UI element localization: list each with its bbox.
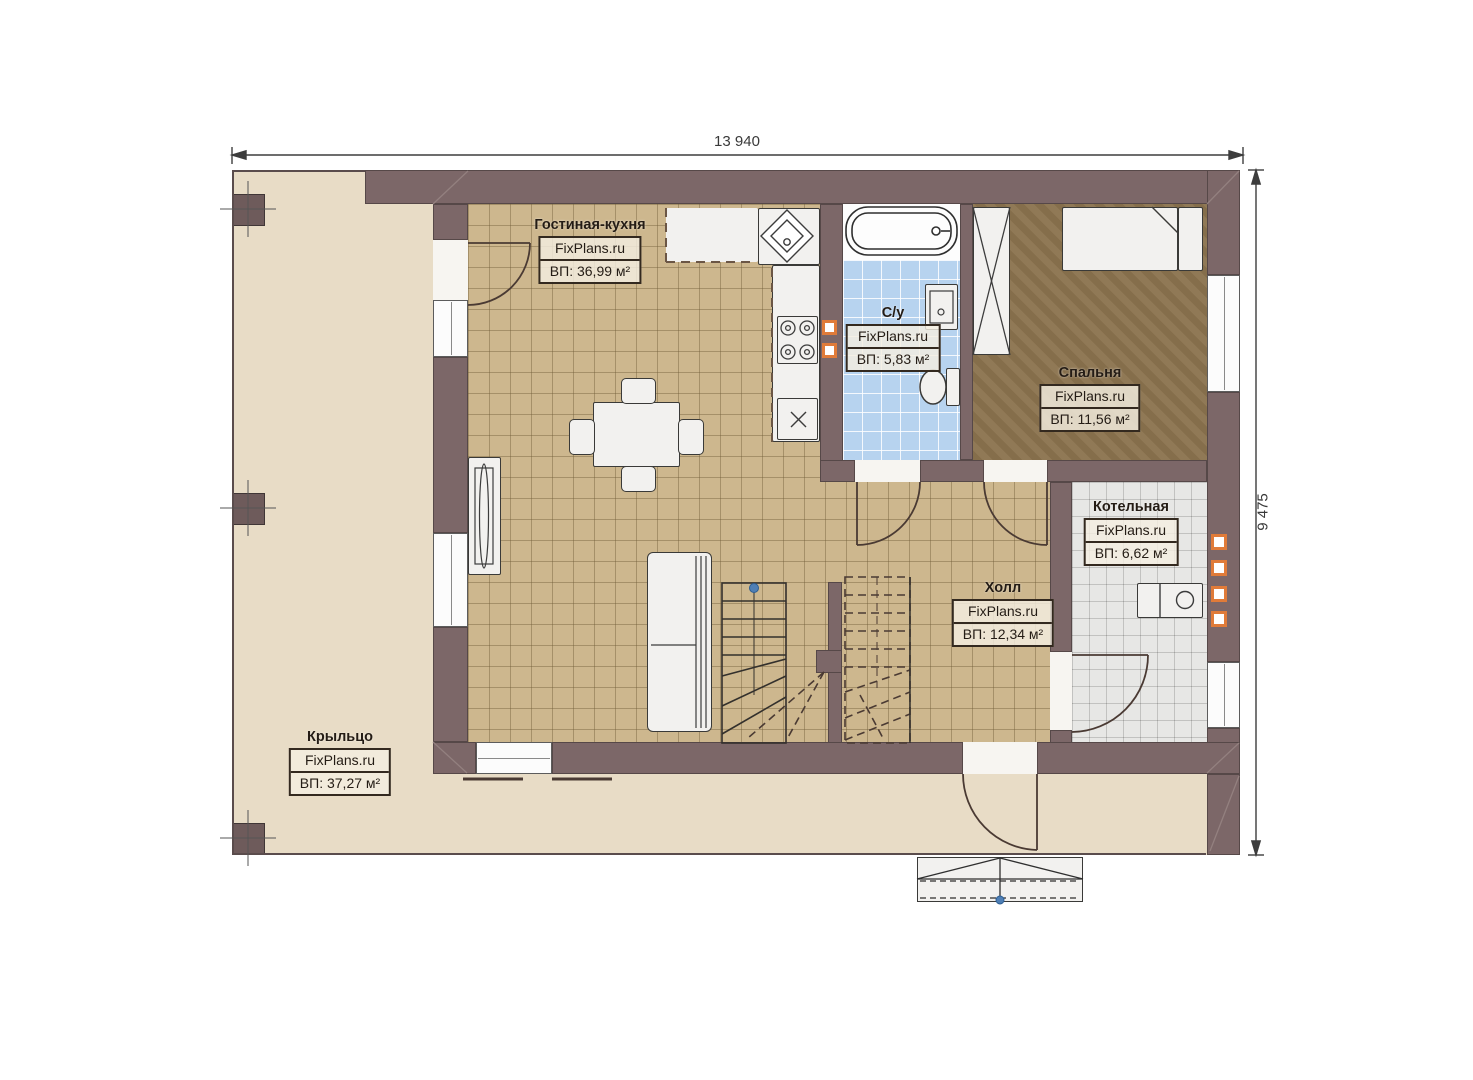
porch-column-3 [233, 823, 265, 855]
sofa [647, 552, 712, 732]
window-bottom [476, 742, 552, 774]
bed [1062, 207, 1178, 271]
watermark: FixPlans.ru [1086, 520, 1177, 541]
wall-right-1 [1207, 170, 1240, 275]
boiler-door-opening [1050, 652, 1072, 730]
room-name: С/у [846, 305, 941, 321]
bathroom-door-opening [855, 460, 920, 482]
vent-marker-2 [822, 343, 837, 358]
room-info-box: FixPlans.ru ВП: 6,62 м² [1084, 518, 1179, 566]
bathroom-tub-zone [843, 204, 960, 260]
room-area: ВП: 5,83 м² [848, 347, 939, 370]
watermark: FixPlans.ru [541, 238, 639, 259]
dimension-width-label: 13 940 [714, 133, 760, 150]
wall-top [365, 170, 1240, 204]
toilet-tank [946, 368, 960, 406]
watermark: FixPlans.ru [954, 601, 1052, 622]
wardrobe [973, 207, 1010, 355]
room-name: Холл [952, 580, 1054, 596]
wall-left-3 [433, 627, 468, 742]
bed-headboard [1178, 207, 1203, 271]
porch-floor-bottom [433, 774, 1207, 855]
room-name: Котельная [1084, 499, 1179, 515]
room-info-box: FixPlans.ru ВП: 36,99 м² [539, 236, 641, 284]
window-left-1 [433, 300, 468, 357]
room-name: Крыльцо [289, 729, 391, 745]
entrance-door-opening [963, 742, 1037, 774]
room-name: Гостиная-кухня [534, 217, 645, 233]
room-name: Спальня [1039, 365, 1140, 381]
wall-bottom-2 [552, 742, 963, 774]
watermark: FixPlans.ru [291, 750, 389, 771]
watermark: FixPlans.ru [848, 326, 939, 347]
kitchen-counter [666, 208, 758, 262]
wall-bottom-3 [1037, 742, 1240, 774]
room-label-porch: Крыльцо FixPlans.ru ВП: 37,27 м² [289, 729, 391, 796]
window-boiler [1207, 662, 1240, 728]
wall-left-1 [433, 204, 468, 240]
chair-left [569, 419, 595, 455]
chair-right [678, 419, 704, 455]
vent-marker-1 [822, 320, 837, 335]
room-area: ВП: 12,34 м² [954, 622, 1052, 645]
dishwasher [777, 398, 818, 440]
bedroom-door-opening [984, 460, 1047, 482]
vent-marker-6 [1211, 611, 1227, 627]
boiler-unit [1137, 583, 1203, 618]
room-info-box: FixPlans.ru ВП: 5,83 м² [846, 324, 941, 372]
room-info-box: FixPlans.ru ВП: 11,56 м² [1039, 384, 1140, 432]
wall-boiler-left-2 [1050, 730, 1072, 743]
entry-steps [917, 857, 1083, 902]
room-info-box: FixPlans.ru ВП: 12,34 м² [952, 599, 1054, 647]
vent-marker-5 [1211, 586, 1227, 602]
room-area: ВП: 11,56 м² [1041, 407, 1138, 430]
dining-table [593, 402, 680, 467]
porch-column-1 [233, 194, 265, 226]
room-area: ВП: 6,62 м² [1086, 541, 1177, 564]
room-info-box: FixPlans.ru ВП: 37,27 м² [289, 748, 391, 796]
wall-bottom-1 [433, 742, 476, 774]
window-bedroom [1207, 275, 1240, 392]
floor-plan-canvas: Гостиная-кухня FixPlans.ru ВП: 36,99 м² … [0, 0, 1473, 1080]
wall-hall-top-1 [820, 460, 855, 482]
vent-marker-4 [1211, 560, 1227, 576]
stove [777, 316, 818, 364]
room-area: ВП: 36,99 м² [541, 259, 639, 282]
radiator [468, 457, 501, 575]
wall-bathroom-right [960, 204, 973, 460]
wall-corner-pillar [1207, 774, 1240, 855]
room-label-hall: Холл FixPlans.ru ВП: 12,34 м² [952, 580, 1054, 647]
room-label-living: Гостиная-кухня FixPlans.ru ВП: 36,99 м² [534, 217, 645, 284]
room-label-boiler: Котельная FixPlans.ru ВП: 6,62 м² [1084, 499, 1179, 566]
room-label-bathroom: С/у FixPlans.ru ВП: 5,83 м² [846, 305, 941, 372]
room-label-bedroom: Спальня FixPlans.ru ВП: 11,56 м² [1039, 365, 1140, 432]
dimension-height-label: 9 475 [1255, 493, 1272, 531]
porch-column-2 [233, 493, 265, 525]
wall-left-2 [433, 357, 468, 533]
chair-top [621, 378, 656, 404]
chair-bottom [621, 466, 656, 492]
room-area: ВП: 37,27 м² [291, 771, 389, 794]
terrace-door-opening [433, 240, 468, 300]
wall-stair-nub [816, 650, 842, 673]
window-left-2 [433, 533, 468, 627]
wall-hall-top-3 [1047, 460, 1207, 482]
watermark: FixPlans.ru [1041, 386, 1138, 407]
vent-marker-3 [1211, 534, 1227, 550]
kitchen-corner-sink-counter [758, 208, 820, 265]
wall-hall-top-2 [920, 460, 984, 482]
